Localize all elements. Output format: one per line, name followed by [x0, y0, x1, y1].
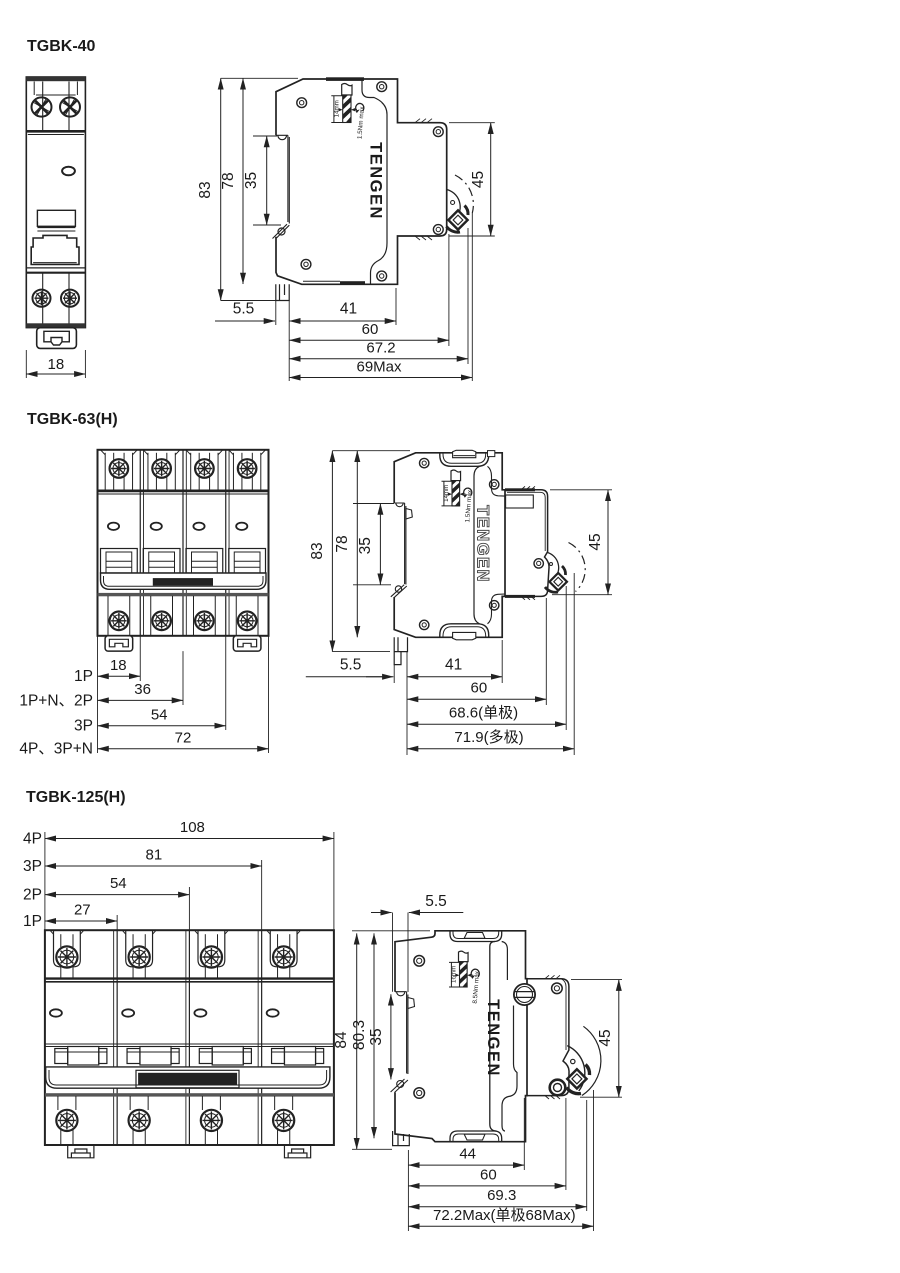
svg-text:83: 83	[197, 181, 214, 198]
svg-text:72: 72	[175, 730, 192, 747]
svg-text:TENGEN: TENGEN	[367, 142, 385, 220]
svg-text:54: 54	[110, 875, 127, 892]
svg-text:5.5: 5.5	[233, 301, 255, 318]
svg-text:36: 36	[134, 681, 151, 698]
svg-text:60: 60	[480, 1167, 497, 1184]
svg-text:71.9(多极): 71.9(多极)	[454, 729, 523, 746]
svg-text:54: 54	[151, 707, 168, 724]
svg-text:18: 18	[48, 356, 65, 373]
svg-text:60: 60	[362, 321, 379, 338]
svg-text:84: 84	[333, 1031, 350, 1049]
svg-text:80.3: 80.3	[351, 1020, 368, 1050]
svg-text:72.2Max(单极68Max): 72.2Max(单极68Max)	[433, 1207, 576, 1224]
svg-text:35: 35	[357, 537, 374, 554]
svg-text:18: 18	[110, 657, 127, 674]
svg-text:69.3: 69.3	[487, 1187, 516, 1204]
svg-text:45: 45	[587, 533, 604, 550]
svg-text:5.5: 5.5	[340, 657, 362, 674]
svg-text:69Max: 69Max	[356, 359, 402, 376]
svg-text:2P: 2P	[23, 887, 42, 904]
svg-text:78: 78	[334, 535, 351, 552]
svg-text:68.6(单极): 68.6(单极)	[449, 705, 518, 722]
svg-text:1P: 1P	[23, 913, 42, 930]
svg-text:1P: 1P	[74, 668, 93, 685]
svg-text:TENGEN: TENGEN	[474, 505, 492, 583]
svg-text:1P+N、2P: 1P+N、2P	[19, 692, 93, 709]
svg-text:44: 44	[459, 1146, 476, 1163]
svg-text:108: 108	[180, 819, 205, 836]
svg-text:41: 41	[340, 301, 357, 318]
svg-text:4P: 4P	[23, 831, 42, 848]
svg-text:3P: 3P	[74, 718, 93, 735]
svg-text:35: 35	[368, 1028, 385, 1045]
svg-text:TGBK-63(H): TGBK-63(H)	[27, 411, 118, 428]
svg-text:45: 45	[470, 171, 487, 188]
svg-text:TENGEN: TENGEN	[484, 999, 502, 1077]
svg-text:60: 60	[471, 680, 488, 697]
svg-text:TGBK-40: TGBK-40	[27, 38, 96, 55]
svg-text:27: 27	[74, 902, 91, 919]
svg-text:3P: 3P	[23, 858, 42, 875]
svg-text:4P、3P+N: 4P、3P+N	[19, 741, 93, 758]
svg-text:5.5: 5.5	[425, 893, 447, 910]
svg-text:67.2: 67.2	[366, 340, 395, 357]
svg-text:83: 83	[309, 542, 326, 559]
svg-text:41: 41	[445, 657, 462, 674]
svg-text:78: 78	[220, 172, 237, 189]
svg-text:81: 81	[146, 847, 163, 864]
svg-text:35: 35	[243, 172, 260, 189]
svg-text:TGBK-125(H): TGBK-125(H)	[26, 789, 126, 806]
svg-text:45: 45	[597, 1029, 614, 1046]
